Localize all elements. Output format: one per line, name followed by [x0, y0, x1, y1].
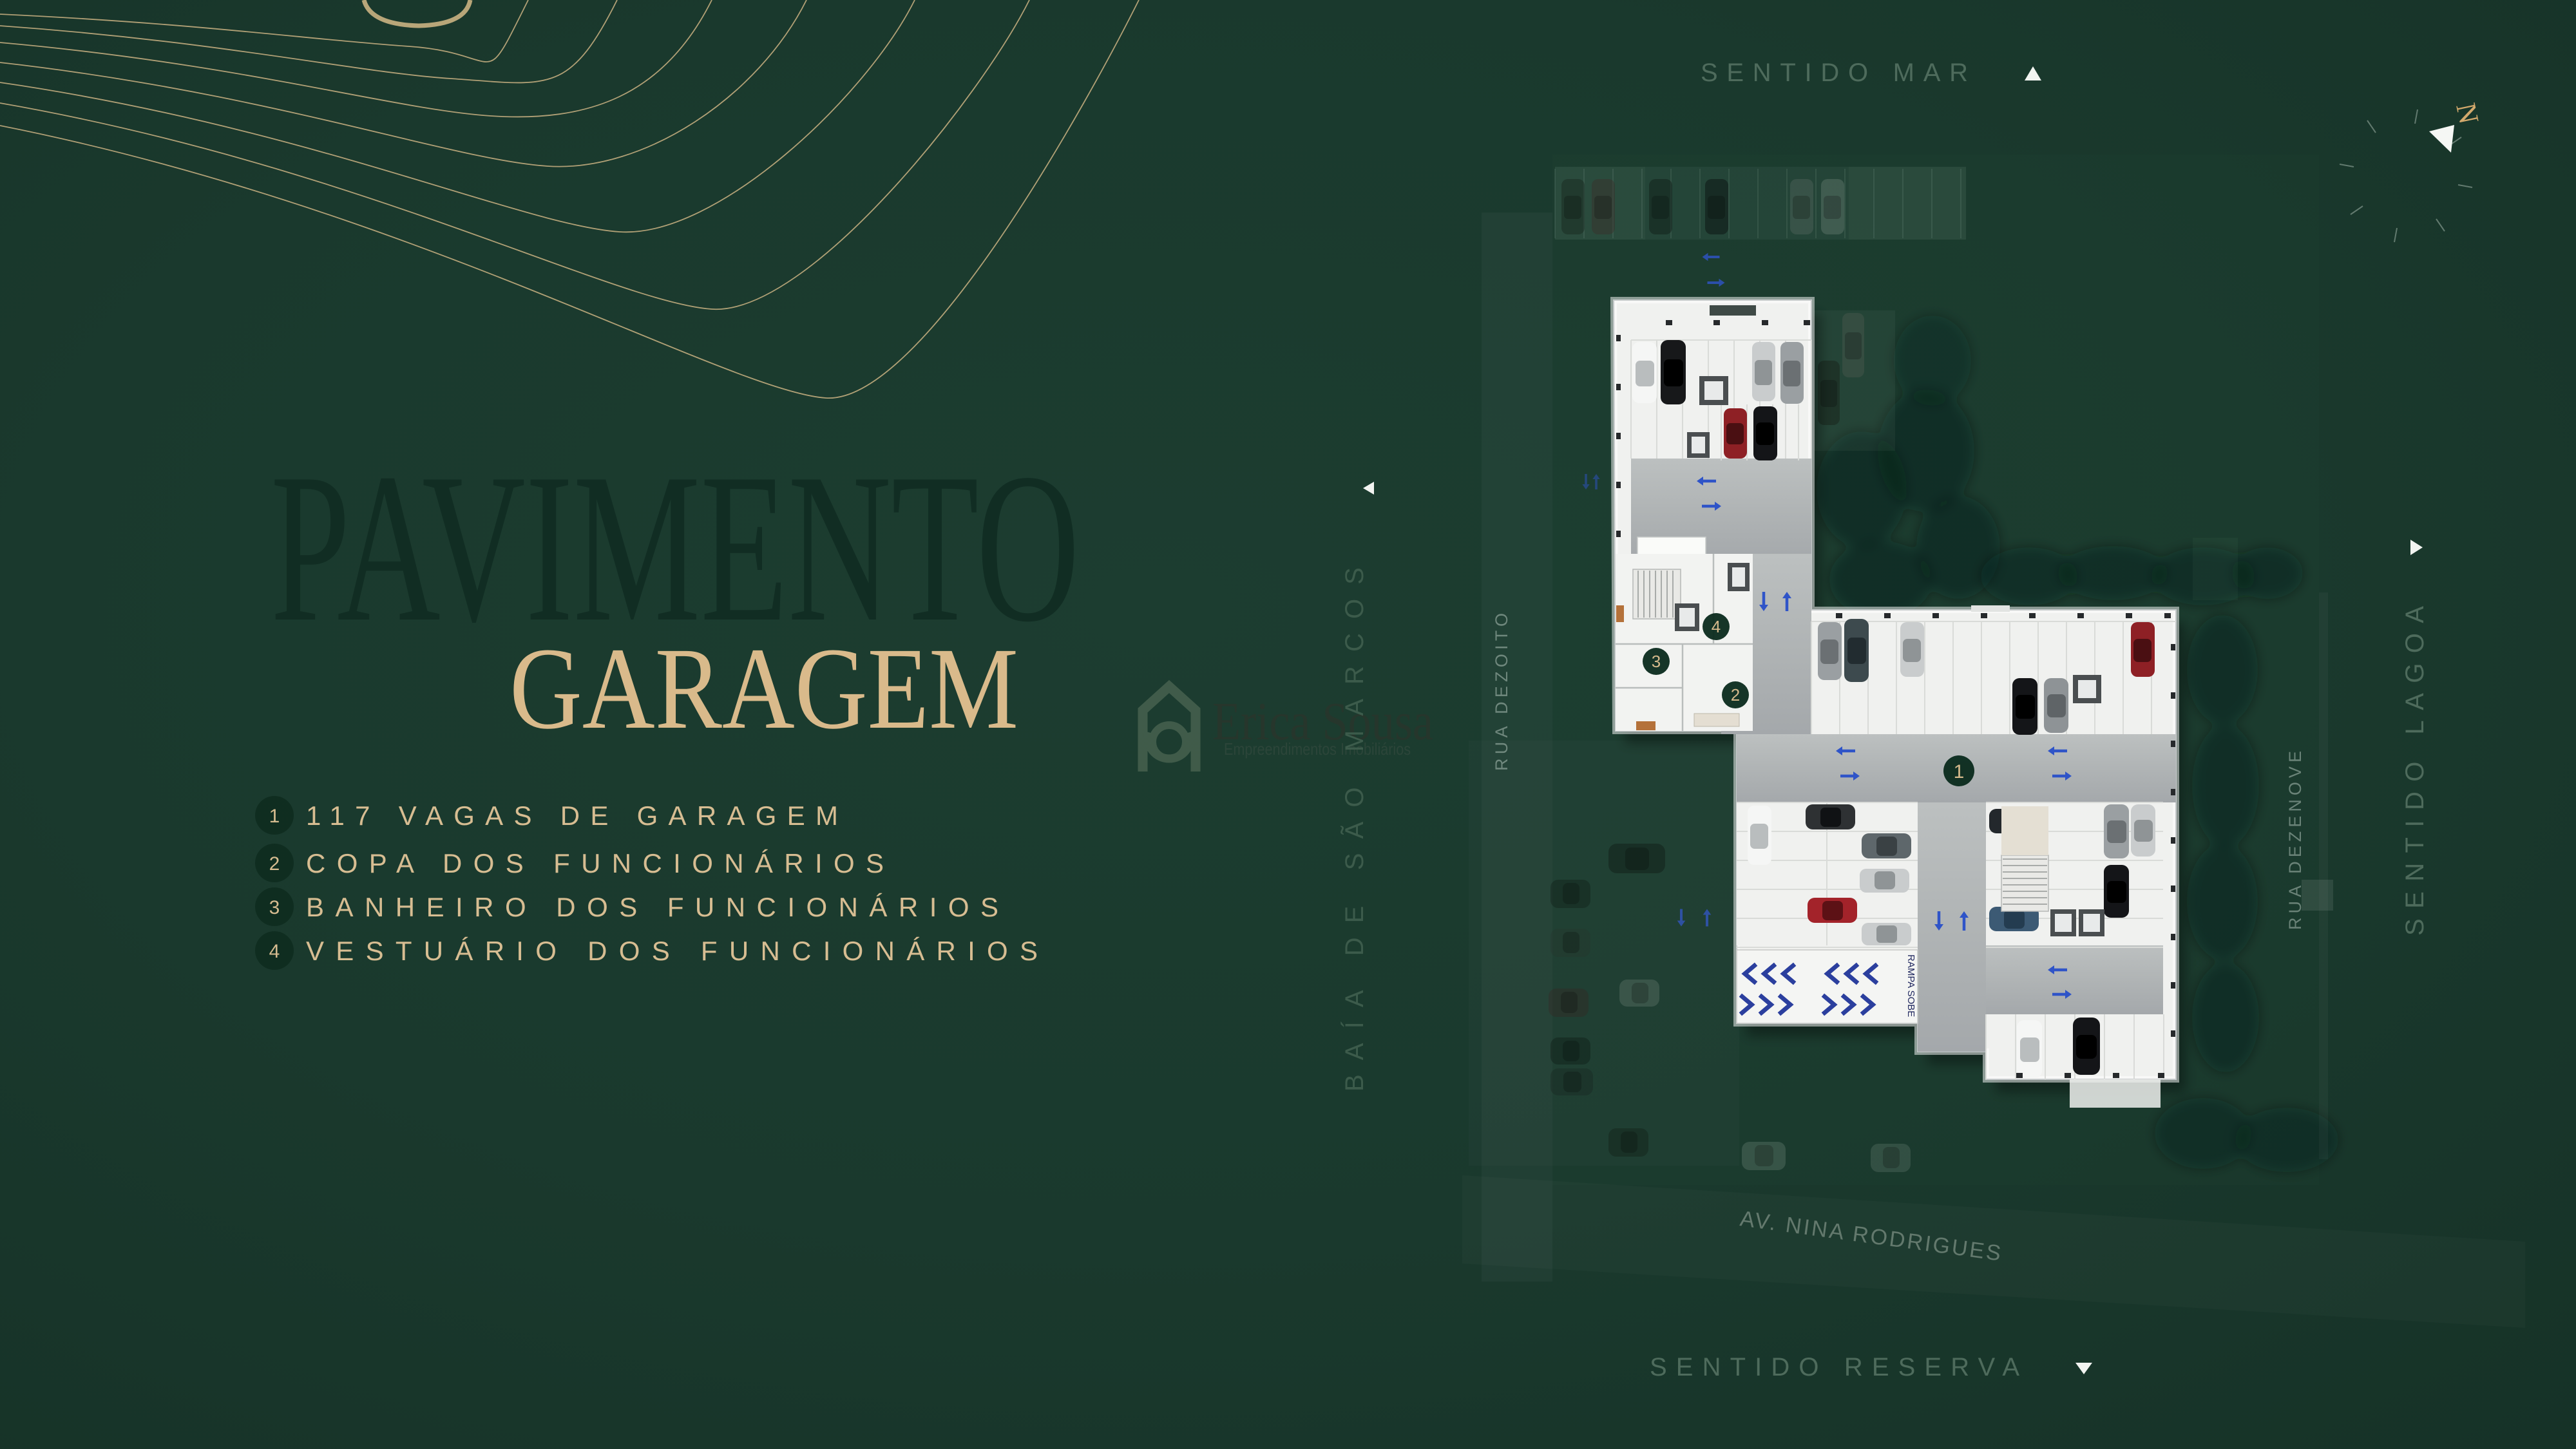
svg-text:2: 2 — [269, 853, 280, 875]
svg-text:1: 1 — [1954, 761, 1965, 782]
svg-text:RAMPA SOBE: RAMPA SOBE — [1905, 954, 1916, 1017]
svg-text:Empreendimentos Imobiliários: Empreendimentos Imobiliários — [1224, 739, 1411, 759]
svg-text:4: 4 — [269, 941, 280, 962]
svg-text:3: 3 — [1652, 652, 1661, 671]
svg-text:SENTIDO LAGOA: SENTIDO LAGOA — [2401, 594, 2429, 936]
svg-text:4: 4 — [1712, 617, 1721, 636]
svg-text:RUA DEZENOVE: RUA DEZENOVE — [2285, 743, 2305, 930]
svg-text:RUA DEZOITO: RUA DEZOITO — [1492, 605, 1511, 771]
svg-text:1: 1 — [269, 806, 280, 827]
svg-text:SENTIDO MAR: SENTIDO MAR — [1701, 59, 1981, 87]
svg-text:GARAGEM: GARAGEM — [510, 624, 1018, 753]
svg-text:2: 2 — [1731, 685, 1740, 705]
svg-text:SENTIDO RESERVA: SENTIDO RESERVA — [1650, 1353, 2030, 1381]
svg-text:BAÍA DE SÃO MARCOS: BAÍA DE SÃO MARCOS — [1340, 557, 1369, 1092]
svg-text:3: 3 — [269, 897, 280, 918]
svg-text:117 VAGAS DE GARAGEM: 117 VAGAS DE GARAGEM — [306, 800, 838, 831]
